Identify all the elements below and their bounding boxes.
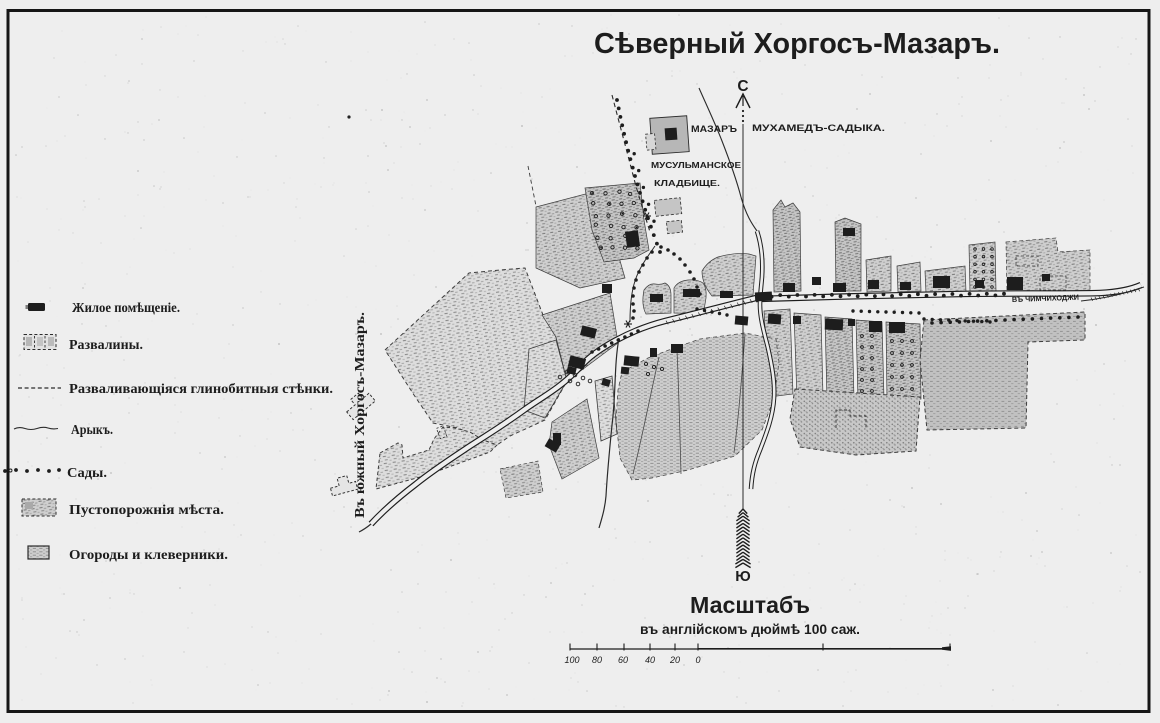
svg-text:МУХАМЕДЪ-САДЫКА.: МУХАМЕДЪ-САДЫКА. [752, 123, 885, 133]
svg-text:Развалины.: Развалины. [69, 337, 143, 352]
svg-text:Разваливающіяся глинобитныя ст: Разваливающіяся глинобитныя стѣнки. [69, 381, 333, 396]
svg-text:Арыкъ.: Арыкъ. [71, 422, 113, 437]
svg-text:20: 20 [669, 655, 680, 665]
svg-text:Сѣверный Хоргосъ-Мазаръ.: Сѣверный Хоргосъ-Мазаръ. [594, 28, 1000, 60]
svg-text:Жилое помѣщеніе.: Жилое помѣщеніе. [72, 300, 180, 315]
svg-text:60: 60 [618, 655, 628, 665]
svg-text:въ англійскомъ дюймѣ 100 саж.: въ англійскомъ дюймѣ 100 саж. [640, 621, 860, 637]
svg-text:Ю: Ю [735, 568, 750, 585]
svg-text:Сады.: Сады. [67, 465, 107, 480]
svg-text:40: 40 [645, 655, 655, 665]
svg-text:Пустопорожнія мѣста.: Пустопорожнія мѣста. [69, 502, 224, 517]
svg-text:МУСУЛЬМАНСКОЕ: МУСУЛЬМАНСКОЕ [651, 160, 741, 170]
svg-text:Огороды и клеверники.: Огороды и клеверники. [69, 547, 228, 562]
svg-text:МАЗАРЪ: МАЗАРЪ [691, 124, 737, 134]
svg-text:100: 100 [564, 655, 579, 665]
svg-text:КЛАДБИЩЕ.: КЛАДБИЩЕ. [654, 178, 720, 188]
svg-text:Въ южный Хоргосъ-Мазаръ.: Въ южный Хоргосъ-Мазаръ. [352, 312, 367, 518]
svg-text:Масштабъ: Масштабъ [690, 592, 810, 618]
svg-text:80: 80 [592, 655, 602, 665]
svg-text:0: 0 [695, 655, 700, 665]
